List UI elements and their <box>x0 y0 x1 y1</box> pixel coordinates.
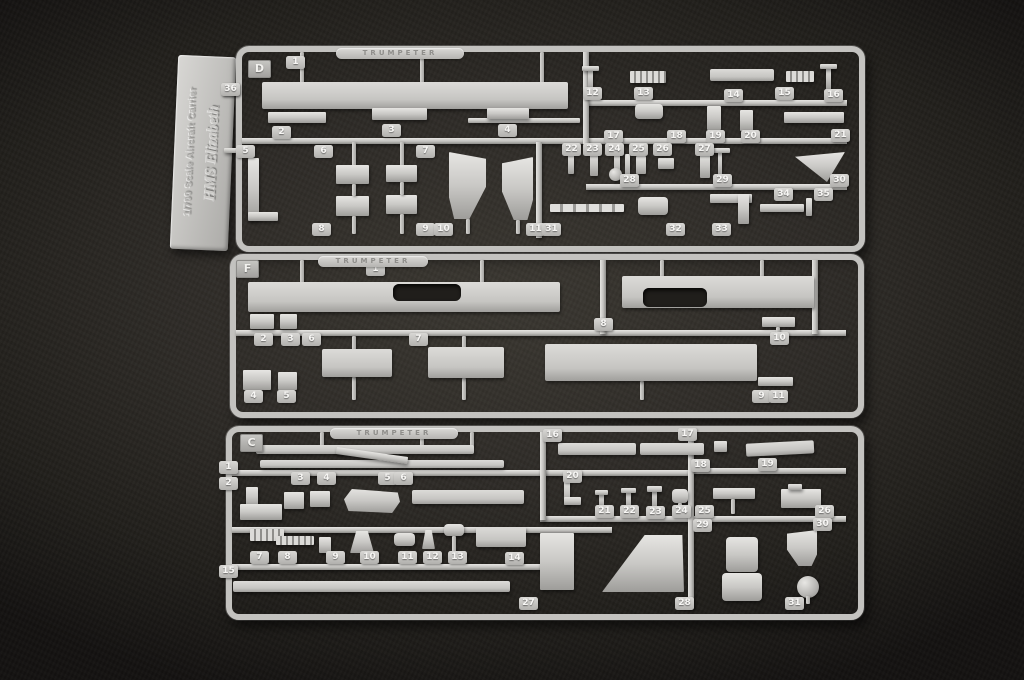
part-number-tab: 1 <box>219 461 238 474</box>
part-number-tab: 13 <box>448 551 467 564</box>
sprue-C: 1234567891011121314151617181920212223242… <box>0 0 1024 680</box>
part-number-tab: 3 <box>291 472 310 485</box>
part-number-tab: 15 <box>219 565 238 578</box>
plastic-part <box>595 490 608 495</box>
part-number-tab: 16 <box>543 429 562 442</box>
plastic-part <box>797 576 819 598</box>
part-number-tab: 19 <box>758 458 777 471</box>
sprue-rail <box>232 564 542 570</box>
brand-stamp: TRUMPETER <box>330 428 458 439</box>
part-number-tab: 6 <box>394 472 413 485</box>
part-number-tab: 30 <box>813 518 832 531</box>
part-number-tab: 25 <box>695 505 714 518</box>
part-number-tab: 14 <box>505 552 524 565</box>
part-number-tab: 4 <box>317 472 336 485</box>
plastic-part <box>476 527 526 547</box>
plastic-part <box>240 504 282 520</box>
part-number-tab: 23 <box>646 506 665 519</box>
plastic-part <box>310 491 330 507</box>
plastic-part <box>284 492 304 509</box>
plastic-part <box>672 489 688 503</box>
plastic-part <box>722 573 762 601</box>
plastic-part <box>412 490 524 504</box>
plastic-part <box>394 533 415 546</box>
plastic-part <box>260 460 504 468</box>
plastic-part <box>788 484 802 490</box>
part-number-tab: 10 <box>360 551 379 564</box>
sprue-letter: C <box>240 434 263 452</box>
plastic-part <box>647 486 662 492</box>
plastic-part <box>621 488 636 493</box>
part-number-tab: 12 <box>423 551 442 564</box>
part-number-tab: 9 <box>326 551 345 564</box>
part-number-tab: 20 <box>563 470 582 483</box>
part-number-tab: 17 <box>678 428 697 441</box>
part-number-tab: 28 <box>675 597 694 610</box>
part-number-tab: 2 <box>219 477 238 490</box>
plastic-part <box>713 488 755 499</box>
plastic-part <box>726 537 758 572</box>
part-number-tab: 11 <box>398 551 417 564</box>
sprue-rail <box>540 432 546 520</box>
part-number-tab: 8 <box>278 551 297 564</box>
part-number-tab: 7 <box>250 551 269 564</box>
plastic-part <box>233 581 510 592</box>
plastic-part <box>540 533 574 590</box>
part-number-tab: 26 <box>815 505 834 518</box>
plastic-part <box>731 499 735 514</box>
part-number-tab: 21 <box>595 505 614 518</box>
plastic-part <box>640 443 704 455</box>
plastic-part <box>444 524 464 536</box>
part-number-tab: 22 <box>620 505 639 518</box>
plastic-part <box>564 497 581 505</box>
plastic-part <box>714 441 727 452</box>
part-number-tab: 24 <box>672 505 691 518</box>
part-number-tab: 29 <box>693 519 712 532</box>
plastic-part <box>276 536 314 545</box>
part-number-tab: 18 <box>691 459 710 472</box>
plastic-part <box>806 596 810 604</box>
part-number-tab: 31 <box>785 597 804 610</box>
plastic-part <box>558 443 636 455</box>
part-number-tab: 27 <box>519 597 538 610</box>
photo: 1/700 Scale Aircraft Carrier HMS Elizabe… <box>0 0 1024 680</box>
